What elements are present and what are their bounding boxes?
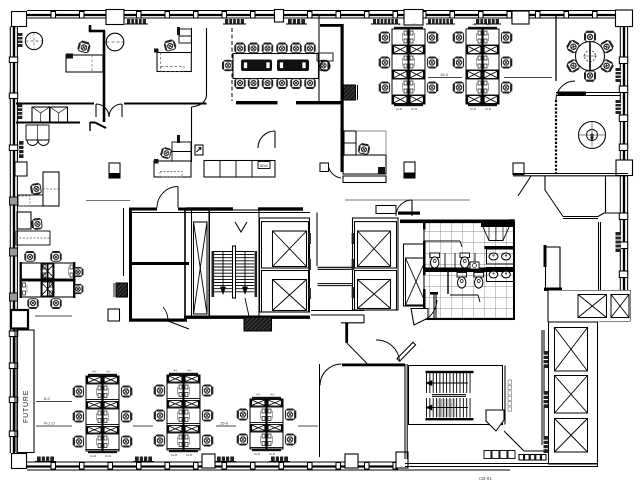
svg-text:CLR: CLR: [470, 107, 477, 111]
svg-text:ADA: ADA: [260, 163, 269, 168]
svg-text:4-0: 4-0: [173, 369, 178, 373]
svg-text:FUTURE: FUTURE: [23, 390, 30, 423]
svg-text:8-2: 8-2: [44, 396, 51, 401]
svg-text:4-0: 4-0: [106, 370, 111, 374]
svg-text:4-0: 4-0: [256, 393, 261, 397]
svg-text:R-1 O: R-1 O: [44, 421, 55, 426]
svg-text:CLR: CLR: [485, 107, 492, 111]
svg-text:4-0: 4-0: [92, 370, 97, 374]
svg-text:4-0: 4-0: [486, 23, 491, 27]
svg-text:CLR: CLR: [411, 107, 418, 111]
svg-text:4-0: 4-0: [270, 393, 275, 397]
svg-text:CB-01: CB-01: [479, 476, 492, 481]
svg-text:CLR: CLR: [269, 452, 276, 456]
svg-text:CLR: CLR: [90, 454, 97, 458]
svg-text:4-0: 4-0: [412, 23, 417, 27]
svg-text:4-0: 4-0: [398, 23, 403, 27]
svg-text:4-0: 4-0: [472, 23, 477, 27]
svg-text:4-0: 4-0: [187, 369, 192, 373]
svg-text:CLR: CLR: [396, 107, 403, 111]
svg-text:15-0: 15-0: [440, 72, 449, 77]
svg-text:CLR: CLR: [105, 454, 112, 458]
svg-text:15-0: 15-0: [220, 421, 229, 426]
svg-text:CLR: CLR: [254, 452, 261, 456]
svg-text:CLR: CLR: [186, 453, 193, 457]
svg-text:CLR: CLR: [171, 453, 178, 457]
